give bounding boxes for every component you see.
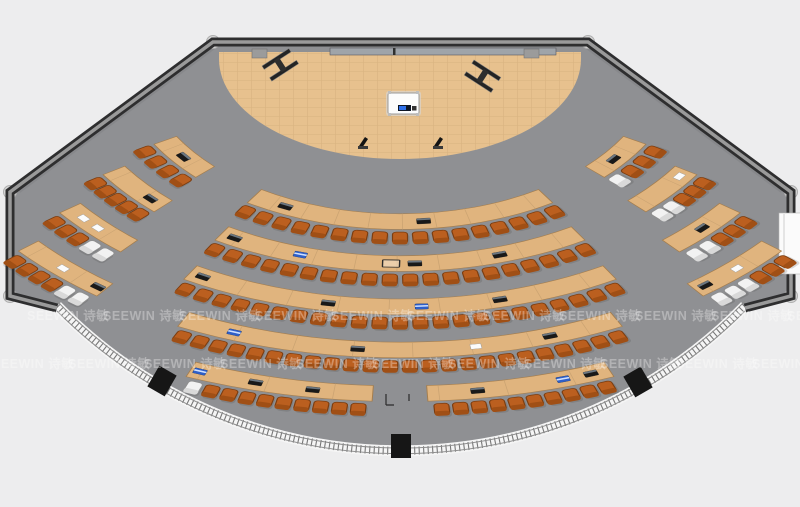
projection-screen [330,48,556,55]
glass-wall-door-block [391,434,411,458]
watermark: SEEWIN 诗敏 [483,308,565,323]
wall-sensor [393,48,396,55]
laptop [416,218,431,224]
chair [361,273,380,288]
projector [382,260,399,267]
chair [340,271,360,286]
watermark: SEEWIN 诗敏 [372,356,454,371]
chair [412,231,431,245]
watermark: SEEWIN 诗敏 [103,308,185,323]
watermark: SEEWIN 诗敏 [331,308,413,323]
chair-back [382,281,397,286]
chair-back [350,411,366,416]
watermark: SEEWIN 诗敏 [0,356,74,371]
chair [393,232,410,246]
chair-back [423,280,439,286]
podium [386,91,421,116]
chair-back [435,411,451,416]
watermark: SEEWIN 诗敏 [144,356,226,371]
stand-base [358,146,368,149]
podium-foot [416,91,419,94]
chair-back [393,325,408,330]
watermark: SEEWIN 诗敏 [787,308,800,323]
watermark: SEEWIN 诗敏 [600,356,682,371]
watermark: SEEWIN 诗敏 [676,356,758,371]
watermark: SEEWIN 诗敏 [448,356,530,371]
chair-back [403,281,418,286]
watermark: SEEWIN 诗敏 [68,356,150,371]
chair-back [331,409,347,415]
podium-button [412,106,417,111]
podium-foot [388,91,391,94]
chair [402,274,420,288]
floor-plan-canvas: SEEWIN 诗敏 SEEWIN 诗敏SEEWIN 诗敏SEEWIN 诗敏SEE… [0,0,800,507]
chair [331,402,350,417]
watermark: SEEWIN 诗敏 [635,308,717,323]
watermark: SEEWIN 诗敏 [407,308,489,323]
chair-back [413,239,429,244]
laptop [408,261,422,267]
chair-back [393,240,408,245]
chair-back [372,324,387,329]
watermark: SEEWIN 诗敏 [524,356,606,371]
chair [311,401,331,416]
wall-speaker [252,49,267,58]
laptop [350,346,365,352]
chair-back [434,323,450,329]
chair-back [453,409,469,415]
chair [350,403,369,417]
chair [371,231,390,245]
wall-speaker [524,49,539,58]
watermark: SEEWIN 诗敏 [179,308,261,323]
watermark: SEEWIN 诗敏 [27,308,109,323]
podium-foot [416,113,419,116]
podium-screen-glow [399,106,406,110]
chair [382,274,400,288]
watermark: SEEWIN 诗敏 [255,308,337,323]
chair-back [372,239,388,244]
watermark: SEEWIN 诗敏 [220,356,302,371]
laptop [470,387,485,394]
auditorium-floor-plan: SEEWIN 诗敏SEEWIN 诗敏SEEWIN 诗敏SEEWIN 诗敏SEEW… [0,0,800,507]
chair-back [361,280,377,286]
chair-back [351,323,367,329]
chair [350,230,370,245]
watermark: SEEWIN 诗敏 [752,356,800,371]
paper-sheet [470,344,482,350]
stand-base [433,146,443,149]
podium-foot [388,113,391,116]
door-block [391,434,411,458]
chair-back [413,324,428,329]
watermark: SEEWIN 诗敏 [711,308,793,323]
watermark: SEEWIN 诗敏 [559,308,641,323]
watermark: SEEWIN 诗敏 [296,356,378,371]
